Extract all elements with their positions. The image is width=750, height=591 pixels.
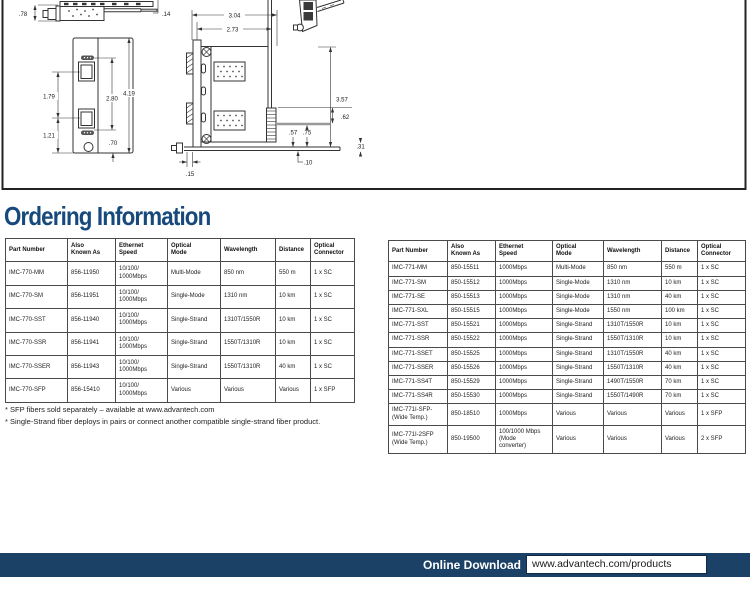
cell-optical-connector: 1 x SC: [698, 262, 746, 276]
ordering-table-imc-770: Part Number Also Known As Ethernet Speed…: [5, 238, 355, 403]
cell-part-number: IMC-771-SST: [389, 319, 448, 333]
table-row: IMC-771-SST 850-15521 1000Mbps Single-St…: [389, 319, 746, 333]
cell-optical-mode: Single-Mode: [168, 285, 221, 308]
cell-ethernet-speed: 10/100/ 1000Mbps: [116, 285, 168, 308]
dim-label-front-lower: 1.21: [43, 134, 55, 140]
cell-distance: 10 km: [276, 332, 311, 355]
cell-distance: 70 km: [662, 376, 698, 390]
cell-also-known-as: 850-15513: [448, 290, 496, 304]
cell-optical-mode: Single-Strand: [168, 356, 221, 379]
table-row: IMC-771-SE 850-15513 1000Mbps Single-Mod…: [389, 290, 746, 304]
cell-part-number: IMC-771-SSET: [389, 347, 448, 361]
column-header-wavelength: Wavelength: [604, 241, 662, 262]
cell-distance: 550 m: [276, 262, 311, 285]
table-row: IMC-771-SSR 850-15522 1000Mbps Single-St…: [389, 333, 746, 347]
dim-label-side-inner: .57: [289, 131, 298, 137]
page-title: Ordering Information: [4, 201, 210, 232]
cell-optical-connector: 1 x SC: [311, 285, 355, 308]
dim-label-front-ports: 2.80: [106, 97, 118, 103]
cell-also-known-as: 850-15515: [448, 305, 496, 319]
cell-optical-mode: Multi-Mode: [553, 262, 604, 276]
front-view: 1.79 1.21 2.80 4.19 .70: [41, 38, 138, 162]
cell-ethernet-speed: 100/1000 Mbps (Mode converter): [496, 425, 553, 454]
cell-ethernet-speed: 1000Mbps: [496, 347, 553, 361]
cell-also-known-as: 856-15410: [68, 379, 116, 402]
mechanical-drawing: .78 .14: [0, 0, 750, 192]
cell-ethernet-speed: 10/100/ 1000Mbps: [116, 356, 168, 379]
column-header-also-known-as: Also Known As: [68, 239, 116, 262]
column-header-optical-mode: Optical Mode: [553, 241, 604, 262]
dim-label-profile-tab: .14: [162, 12, 171, 18]
cell-wavelength: Various: [221, 379, 276, 402]
cell-optical-mode: Single-Strand: [553, 361, 604, 375]
cell-optical-mode: Single-Strand: [553, 319, 604, 333]
cell-also-known-as: 856-11940: [68, 309, 116, 332]
cell-optical-connector: 1 x SC: [311, 262, 355, 285]
cell-wavelength: 1550 nm: [604, 305, 662, 319]
cell-ethernet-speed: 10/100/ 1000Mbps: [116, 262, 168, 285]
cell-also-known-as: 850-15526: [448, 361, 496, 375]
footnote-single-strand: * Single-Strand fiber deploys in pairs o…: [5, 416, 320, 428]
cell-wavelength: 1310 nm: [221, 285, 276, 308]
cell-optical-mode: Single-Mode: [553, 276, 604, 290]
cell-part-number: IMC-770-SFP: [6, 379, 68, 402]
cell-distance: 40 km: [276, 356, 311, 379]
cell-also-known-as: 850-15522: [448, 333, 496, 347]
dim-label-front-bottom: .70: [109, 141, 118, 147]
cell-optical-connector: 1 x SC: [698, 376, 746, 390]
cell-optical-connector: 1 x SC: [698, 305, 746, 319]
datasheet-page: .78 .14: [0, 0, 750, 591]
cell-part-number: IMC-771-SM: [389, 276, 448, 290]
table-row: IMC-771-SSER 850-15526 1000Mbps Single-S…: [389, 361, 746, 375]
cell-optical-connector: 1 x SC: [698, 347, 746, 361]
column-header-ethernet-speed: Ethernet Speed: [496, 241, 553, 262]
cell-part-number: IMC-771-SSER: [389, 361, 448, 375]
cell-wavelength: 1490T/1550R: [604, 376, 662, 390]
cell-ethernet-speed: 1000Mbps: [496, 290, 553, 304]
cell-ethernet-speed: 1000Mbps: [496, 319, 553, 333]
cell-optical-connector: 1 x SC: [698, 276, 746, 290]
cell-part-number: IMC-771I-2SFP (Wide Temp.): [389, 425, 448, 454]
cell-also-known-as: 850-19500: [448, 425, 496, 454]
isometric-view: [294, 0, 345, 32]
cell-optical-mode: Single-Strand: [168, 332, 221, 355]
cell-optical-connector: 1 x SC: [698, 290, 746, 304]
dim-label-side-conn: .62: [341, 115, 350, 121]
dim-label-side-rail: .31: [356, 145, 365, 151]
column-header-optical-connector: Optical Connector: [311, 239, 355, 262]
cell-distance: Various: [662, 425, 698, 454]
cell-distance: 10 km: [662, 319, 698, 333]
cell-part-number: IMC-771-MM: [389, 262, 448, 276]
cell-part-number: IMC-770-SSER: [6, 356, 68, 379]
column-header-optical-connector: Optical Connector: [698, 241, 746, 262]
cell-wavelength: 1310 nm: [604, 276, 662, 290]
cell-ethernet-speed: 10/100/ 1000Mbps: [116, 332, 168, 355]
cell-optical-mode: Single-Strand: [168, 309, 221, 332]
cell-part-number: IMC-770-SST: [6, 309, 68, 332]
table-row: IMC-770-SSR 856-11941 10/100/ 1000Mbps S…: [6, 332, 355, 355]
cell-optical-connector: 1 x SC: [311, 332, 355, 355]
cell-also-known-as: 850-18510: [448, 404, 496, 425]
table-row: IMC-770-SM 856-11951 10/100/ 1000Mbps Si…: [6, 285, 355, 308]
footer-url-link[interactable]: www.advantech.com/products: [526, 555, 707, 574]
cell-wavelength: 1550T/1310R: [604, 361, 662, 375]
table-row: IMC-771-SS4T 850-15529 1000Mbps Single-S…: [389, 376, 746, 390]
cell-optical-connector: 1 x SFP: [698, 404, 746, 425]
column-header-also-known-as: Also Known As: [448, 241, 496, 262]
column-header-ethernet-speed: Ethernet Speed: [116, 239, 168, 262]
cell-optical-connector: 1 x SC: [311, 309, 355, 332]
cell-part-number: IMC-771-SE: [389, 290, 448, 304]
cell-optical-mode: Single-Strand: [553, 333, 604, 347]
footnote-sfp: * SFP fibers sold separately – available…: [5, 404, 320, 416]
cell-ethernet-speed: 1000Mbps: [496, 376, 553, 390]
column-header-optical-mode: Optical Mode: [168, 239, 221, 262]
cell-wavelength: 1550T/1310R: [221, 356, 276, 379]
table-row: IMC-771-SSET 850-15525 1000Mbps Single-S…: [389, 347, 746, 361]
cell-optical-connector: 1 x SC: [698, 333, 746, 347]
online-download-label: Online Download: [423, 553, 521, 577]
cell-distance: 10 km: [276, 309, 311, 332]
table-row: IMC-771I-SFP- (Wide Temp.) 850-18510 100…: [389, 404, 746, 425]
cell-optical-mode: Multi-Mode: [168, 262, 221, 285]
cell-part-number: IMC-771-SS4T: [389, 376, 448, 390]
cell-also-known-as: 856-11943: [68, 356, 116, 379]
cell-wavelength: Various: [604, 425, 662, 454]
cell-ethernet-speed: 1000Mbps: [496, 276, 553, 290]
dim-label-side-plate: .15: [186, 172, 195, 178]
cell-wavelength: Various: [604, 404, 662, 425]
cell-wavelength: 1550T/1490R: [604, 390, 662, 404]
cell-ethernet-speed: 10/100/ 1000Mbps: [116, 379, 168, 402]
ordering-table-imc-771: Part Number Also Known As Ethernet Speed…: [388, 240, 746, 454]
cell-part-number: IMC-771-SXL: [389, 305, 448, 319]
cell-part-number: IMC-771I-SFP- (Wide Temp.): [389, 404, 448, 425]
cell-distance: 550 m: [662, 262, 698, 276]
column-header-distance: Distance: [662, 241, 698, 262]
cell-distance: 40 km: [662, 347, 698, 361]
profile-view: .78 .14: [19, 0, 171, 21]
cell-wavelength: 1310 nm: [604, 290, 662, 304]
cell-part-number: IMC-770-SM: [6, 285, 68, 308]
cell-also-known-as: 850-15511: [448, 262, 496, 276]
cell-part-number: IMC-770-SSR: [6, 332, 68, 355]
table-row: IMC-771-SM 850-15512 1000Mbps Single-Mod…: [389, 276, 746, 290]
cell-ethernet-speed: 1000Mbps: [496, 262, 553, 276]
cell-wavelength: 1550T/1310R: [221, 332, 276, 355]
cell-optical-mode: Single-Strand: [553, 376, 604, 390]
cell-optical-connector: 1 x SFP: [311, 379, 355, 402]
header-row: Part Number Also Known As Ethernet Speed…: [389, 241, 746, 262]
cell-distance: 10 km: [276, 285, 311, 308]
cell-ethernet-speed: 1000Mbps: [496, 361, 553, 375]
dim-label-side-edge: .75: [303, 131, 312, 137]
cell-wavelength: 850 nm: [604, 262, 662, 276]
cell-optical-mode: Single-Strand: [553, 390, 604, 404]
cell-also-known-as: 850-15521: [448, 319, 496, 333]
cell-wavelength: 1310T/1550R: [604, 347, 662, 361]
cell-distance: 40 km: [662, 361, 698, 375]
cell-wavelength: 1310T/1550R: [221, 309, 276, 332]
table-row: IMC-770-SSER 856-11943 10/100/ 1000Mbps …: [6, 356, 355, 379]
cell-ethernet-speed: 1000Mbps: [496, 390, 553, 404]
dim-label-side-width-total: 3.04: [229, 14, 241, 20]
footnotes: * SFP fibers sold separately – available…: [5, 404, 320, 428]
cell-ethernet-speed: 1000Mbps: [496, 305, 553, 319]
cell-optical-connector: 1 x SC: [698, 361, 746, 375]
cell-optical-mode: Single-Mode: [553, 290, 604, 304]
cell-part-number: IMC-770-MM: [6, 262, 68, 285]
cell-distance: 10 km: [662, 276, 698, 290]
dim-label-front-upper: 1.79: [43, 95, 55, 101]
cell-optical-mode: Various: [553, 425, 604, 454]
column-header-part-number: Part Number: [389, 241, 448, 262]
cell-optical-mode: Single-Strand: [553, 347, 604, 361]
cell-also-known-as: 856-11951: [68, 285, 116, 308]
cell-distance: 100 km: [662, 305, 698, 319]
cell-also-known-as: 850-15529: [448, 376, 496, 390]
cell-optical-connector: 1 x SC: [698, 390, 746, 404]
cell-wavelength: 850 nm: [221, 262, 276, 285]
cell-ethernet-speed: 10/100/ 1000Mbps: [116, 309, 168, 332]
header-row: Part Number Also Known As Ethernet Speed…: [6, 239, 355, 262]
table-row: IMC-771-SS4R 850-15530 1000Mbps Single-S…: [389, 390, 746, 404]
cell-part-number: IMC-771-SSR: [389, 333, 448, 347]
cell-distance: 70 km: [662, 390, 698, 404]
cell-optical-connector: 1 x SC: [311, 356, 355, 379]
footer-bar: Online Download www.advantech.com/produc…: [0, 553, 750, 577]
cell-distance: 40 km: [662, 290, 698, 304]
cell-also-known-as: 850-15525: [448, 347, 496, 361]
side-view: 3.04 2.73: [172, 0, 366, 178]
cell-also-known-as: 850-15512: [448, 276, 496, 290]
cell-wavelength: 1550T/1310R: [604, 333, 662, 347]
dim-label-profile-height: .78: [19, 12, 28, 18]
table-row: IMC-771I-2SFP (Wide Temp.) 850-19500 100…: [389, 425, 746, 454]
dim-label-side-height-total: 3.57: [336, 98, 348, 104]
dim-label-front-total: 4.19: [123, 92, 135, 98]
column-header-part-number: Part Number: [6, 239, 68, 262]
cell-distance: Various: [662, 404, 698, 425]
cell-also-known-as: 850-15530: [448, 390, 496, 404]
column-header-distance: Distance: [276, 239, 311, 262]
table-row: IMC-771-MM 850-15511 1000Mbps Multi-Mode…: [389, 262, 746, 276]
table-row: IMC-771-SXL 850-15515 1000Mbps Single-Mo…: [389, 305, 746, 319]
cell-wavelength: 1310T/1550R: [604, 319, 662, 333]
table-row: IMC-770-MM 856-11950 10/100/ 1000Mbps Mu…: [6, 262, 355, 285]
cell-distance: 10 km: [662, 333, 698, 347]
cell-optical-mode: Various: [553, 404, 604, 425]
cell-also-known-as: 856-11941: [68, 332, 116, 355]
cell-optical-connector: 1 x SC: [698, 319, 746, 333]
dim-label-side-width-body: 2.73: [227, 28, 239, 34]
table-row: IMC-770-SFP 856-15410 10/100/ 1000Mbps V…: [6, 379, 355, 402]
dim-label-side-offset: .10: [304, 161, 313, 167]
cell-optical-mode: Various: [168, 379, 221, 402]
cell-part-number: IMC-771-SS4R: [389, 390, 448, 404]
table-row: IMC-770-SST 856-11940 10/100/ 1000Mbps S…: [6, 309, 355, 332]
cell-ethernet-speed: 1000Mbps: [496, 404, 553, 425]
cell-distance: Various: [276, 379, 311, 402]
column-header-wavelength: Wavelength: [221, 239, 276, 262]
cell-optical-connector: 2 x SFP: [698, 425, 746, 454]
cell-optical-mode: Single-Mode: [553, 305, 604, 319]
cell-ethernet-speed: 1000Mbps: [496, 333, 553, 347]
cell-also-known-as: 856-11950: [68, 262, 116, 285]
